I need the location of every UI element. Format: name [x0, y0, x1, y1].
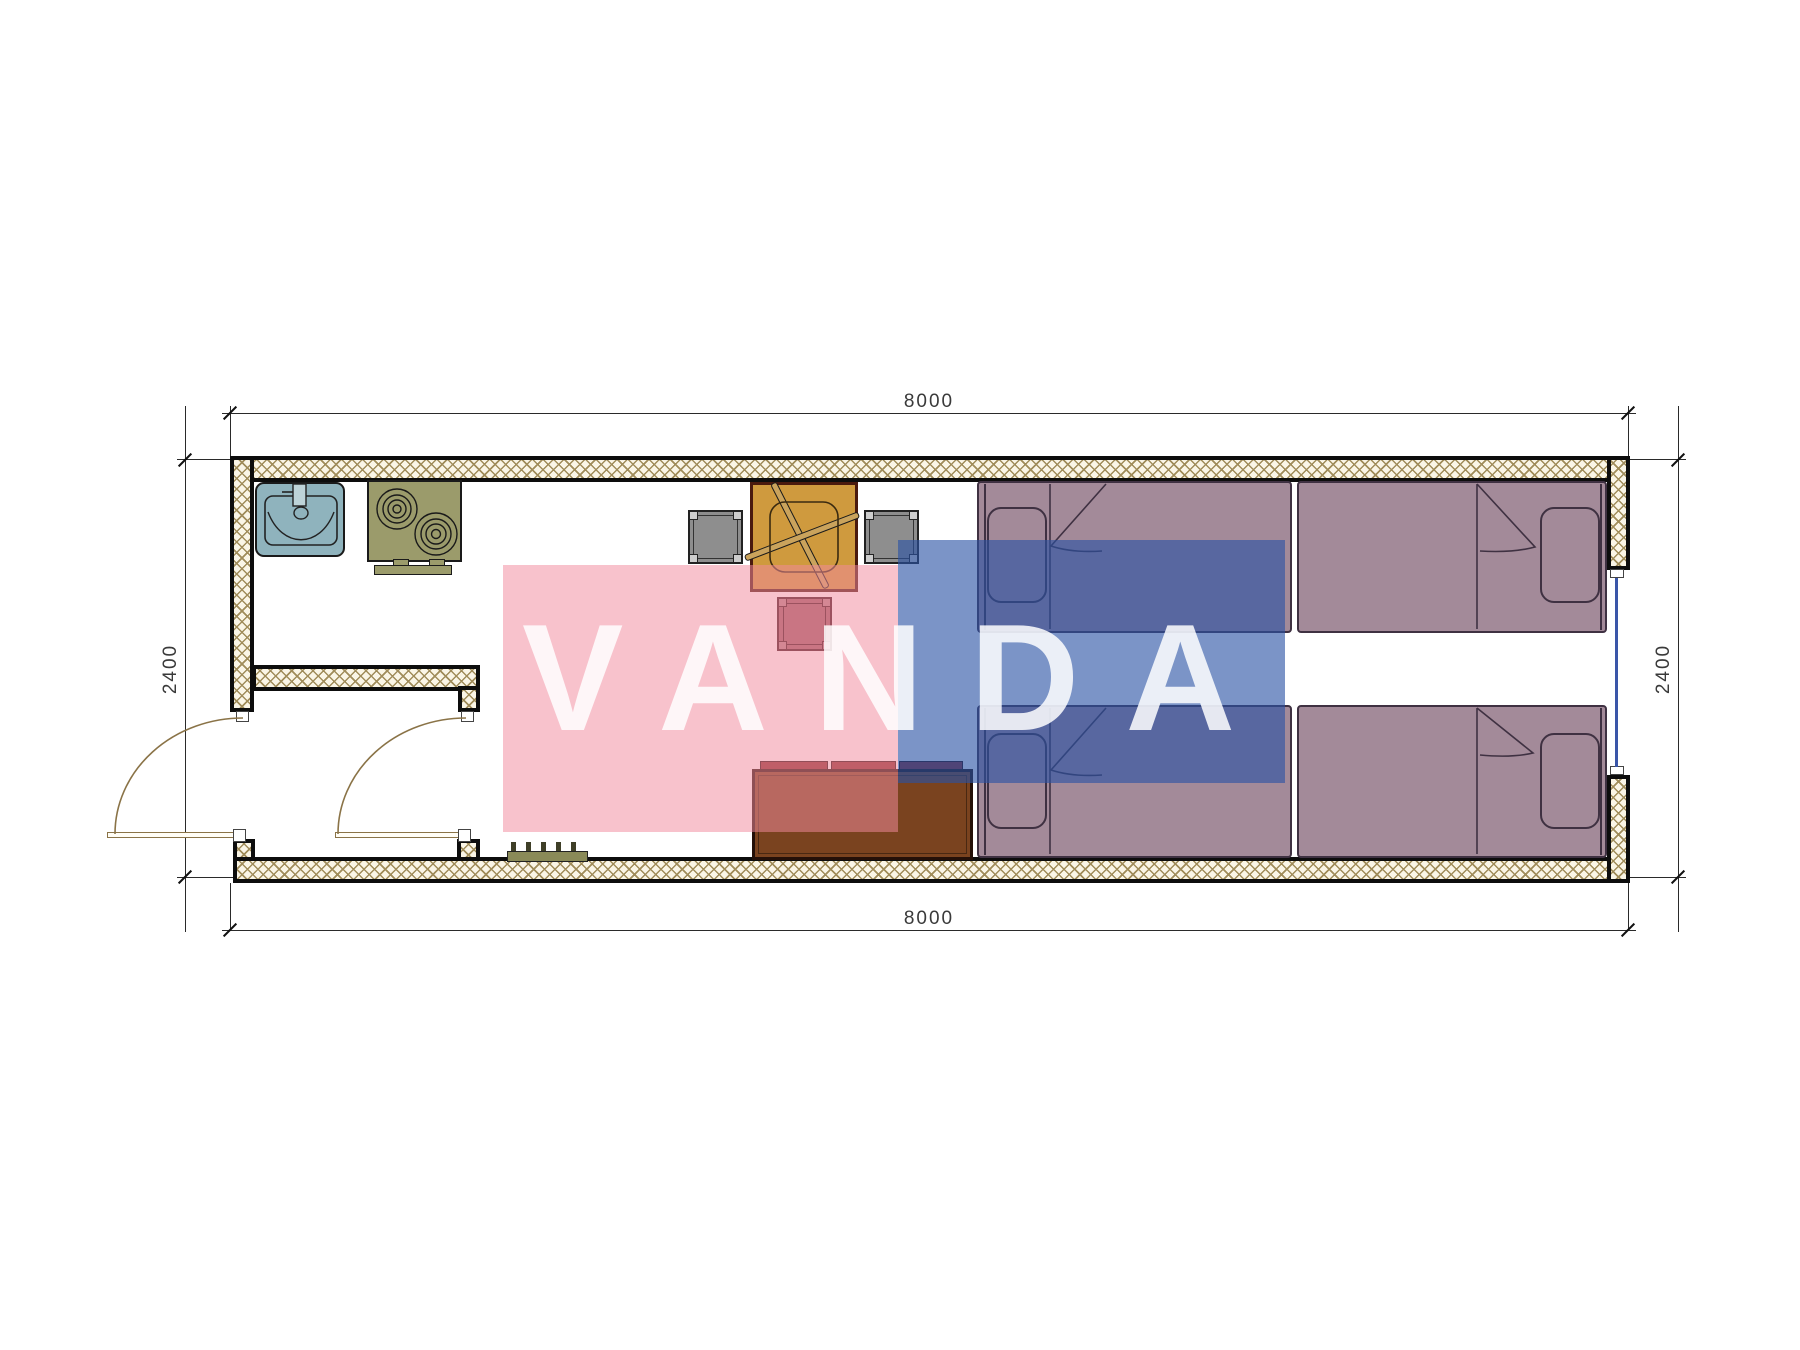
sink-basin-curve — [268, 512, 334, 540]
sink-faucet — [293, 484, 306, 506]
door-swing-arc-right — [338, 718, 466, 834]
watermark-text: VANDA — [522, 602, 1281, 754]
sink-drain — [294, 507, 308, 519]
stove-burner-right — [415, 513, 457, 555]
stove-burner-left — [377, 489, 417, 529]
floorplan-canvas: 8000 8000 2400 2400 — [0, 0, 1800, 1350]
dining-table-top-outline — [770, 502, 838, 572]
door-swing-arc-left — [115, 718, 243, 834]
